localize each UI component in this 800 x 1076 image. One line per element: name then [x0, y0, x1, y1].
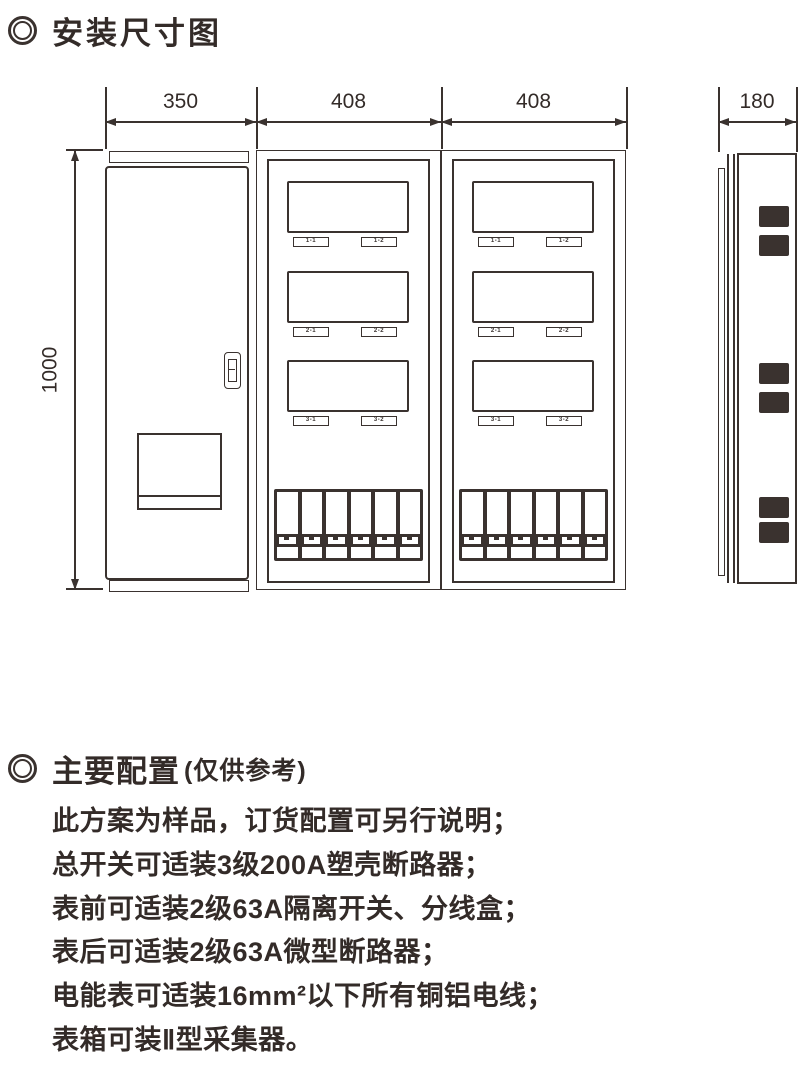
- meter-label: 3-2: [546, 416, 582, 426]
- install-title-text: 安装尺寸图: [52, 8, 222, 53]
- breaker-terminal: [302, 547, 323, 558]
- vent-louver: [759, 497, 789, 518]
- meter-label: 1-1: [478, 237, 514, 247]
- meter-window: [472, 360, 594, 412]
- vent-louver: [759, 206, 789, 227]
- breaker-slot-body: [277, 492, 298, 534]
- breaker-slot-body: [560, 492, 581, 534]
- breaker-slot: [326, 492, 347, 558]
- door-window-sill-line: [139, 495, 220, 497]
- breaker-slot-body: [400, 492, 421, 534]
- extension-line: [796, 87, 798, 152]
- meter-label: 1-2: [546, 237, 582, 247]
- meter-label: 2-1: [478, 327, 514, 337]
- config-line: 电能表可适装16mm²以下所有铜铝电线；: [52, 975, 772, 1019]
- door-bottom-rail: [109, 580, 249, 592]
- meter-panel-right: 1-1 1-2 2-1 2-2 3-1 3-2: [452, 159, 615, 583]
- vent-louver: [759, 522, 789, 543]
- dim-height-value: 1000: [39, 347, 63, 394]
- breaker-toggle: [562, 537, 579, 544]
- breaker-toggle-nub: [469, 535, 474, 540]
- config-line: 表后可适装2级63A微型断路器；: [52, 931, 772, 975]
- breaker-toggle: [377, 537, 394, 544]
- meter-label: 2-2: [546, 327, 582, 337]
- breaker-toggle-nub: [518, 535, 523, 540]
- breaker-terminal: [487, 547, 508, 558]
- breaker-terminal: [400, 547, 421, 558]
- dim-height: 1000: [74, 150, 76, 590]
- breaker-toggle: [279, 537, 296, 544]
- side-frame-line: [733, 154, 735, 583]
- config-section-title: 主要配置 (仅供参考): [8, 746, 307, 791]
- breaker-slot: [487, 492, 508, 558]
- breaker-toggle-nub: [284, 535, 289, 540]
- breaker-toggle: [328, 537, 345, 544]
- config-line: 表箱可装Ⅱ型采集器。: [52, 1019, 772, 1063]
- config-line: 总开关可适装3级200A塑壳断路器；: [52, 844, 772, 888]
- door-top-rail: [109, 151, 249, 163]
- meter-label: 1-2: [361, 237, 397, 247]
- breaker-toggle: [513, 537, 530, 544]
- breaker-slot-body: [511, 492, 532, 534]
- dim-panel2-width-value: 408: [441, 90, 626, 114]
- meter-label: 2-2: [361, 327, 397, 337]
- breaker-slot-body: [487, 492, 508, 534]
- breaker-toggle-nub: [494, 535, 499, 540]
- dim-door-width: 350: [105, 121, 256, 123]
- meter-label: 3-1: [478, 416, 514, 426]
- breaker-toggle: [402, 537, 419, 544]
- breaker-slot: [462, 492, 483, 558]
- config-title-text: 主要配置: [52, 746, 180, 791]
- breaker-row: [274, 489, 423, 561]
- meter-label: 3-2: [361, 416, 397, 426]
- breaker-toggle-nub: [407, 535, 412, 540]
- breaker-row: [459, 489, 608, 561]
- vent-louver: [759, 235, 789, 256]
- side-door-edge: [718, 168, 725, 576]
- catalog-page: { "colors": { "ink": "#3a322f" }, "insta…: [0, 0, 800, 1076]
- breaker-toggle: [587, 537, 604, 544]
- dim-panel2-width: 408: [441, 121, 626, 123]
- vent-louver: [759, 392, 789, 413]
- breaker-slot: [302, 492, 323, 558]
- breaker-slot-body: [585, 492, 606, 534]
- breaker-toggle: [304, 537, 321, 544]
- breaker-slot-body: [536, 492, 557, 534]
- config-line: 此方案为样品，订货配置可另行说明；: [52, 800, 772, 844]
- dim-side-depth-value: 180: [718, 90, 796, 114]
- meter-window: [287, 271, 409, 323]
- breaker-toggle: [464, 537, 481, 544]
- handle-detail-line: [229, 369, 235, 371]
- breaker-terminal: [585, 547, 606, 558]
- meter-label: 3-1: [293, 416, 329, 426]
- meter-window: [472, 271, 594, 323]
- breaker-terminal: [536, 547, 557, 558]
- breaker-slot-body: [375, 492, 396, 534]
- dim-panel1-width-value: 408: [256, 90, 441, 114]
- breaker-slot-body: [462, 492, 483, 534]
- breaker-toggle: [489, 537, 506, 544]
- door-handle: [224, 352, 241, 389]
- config-line: 表前可适装2级63A隔离开关、分线盒；: [52, 888, 772, 932]
- meter-window: [287, 360, 409, 412]
- breaker-slot: [560, 492, 581, 558]
- install-section-title: 安装尺寸图: [8, 8, 222, 53]
- breaker-terminal: [462, 547, 483, 558]
- dim-side-depth: 180: [718, 121, 796, 123]
- breaker-slot: [351, 492, 372, 558]
- meter-label: 2-1: [293, 327, 329, 337]
- breaker-slot: [277, 492, 298, 558]
- breaker-toggle: [353, 537, 370, 544]
- breaker-terminal: [351, 547, 372, 558]
- vent-louver: [759, 363, 789, 384]
- meter-window: [287, 181, 409, 233]
- breaker-slot-body: [326, 492, 347, 534]
- side-frame-line: [727, 154, 729, 583]
- breaker-terminal: [511, 547, 532, 558]
- breaker-terminal: [560, 547, 581, 558]
- breaker-toggle: [538, 537, 555, 544]
- bullseye-icon: [8, 754, 37, 783]
- breaker-slot: [400, 492, 421, 558]
- breaker-slot-body: [351, 492, 372, 534]
- bullseye-icon: [8, 16, 37, 45]
- breaker-terminal: [326, 547, 347, 558]
- breaker-toggle-nub: [382, 535, 387, 540]
- door-handle-latch: [228, 359, 237, 382]
- breaker-slot: [375, 492, 396, 558]
- breaker-slot: [511, 492, 532, 558]
- extension-line: [626, 87, 628, 149]
- breaker-toggle-nub: [592, 535, 597, 540]
- breaker-toggle-nub: [567, 535, 572, 540]
- breaker-slot: [585, 492, 606, 558]
- config-text-block: 此方案为样品，订货配置可另行说明； 总开关可适装3级200A塑壳断路器； 表前可…: [52, 800, 772, 1063]
- door-window: [137, 433, 222, 510]
- breaker-toggle-nub: [333, 535, 338, 540]
- meter-panel-left: 1-1 1-2 2-1 2-2 3-1 3-2: [267, 159, 430, 583]
- breaker-terminal: [277, 547, 298, 558]
- breaker-terminal: [375, 547, 396, 558]
- breaker-toggle-nub: [358, 535, 363, 540]
- breaker-toggle-nub: [309, 535, 314, 540]
- breaker-slot-body: [302, 492, 323, 534]
- config-subtitle-text: (仅供参考): [184, 751, 307, 787]
- breaker-slot: [536, 492, 557, 558]
- breaker-toggle-nub: [543, 535, 548, 540]
- dim-door-width-value: 350: [105, 90, 256, 114]
- meter-label: 1-1: [293, 237, 329, 247]
- dim-panel1-width: 408: [256, 121, 441, 123]
- meter-window: [472, 181, 594, 233]
